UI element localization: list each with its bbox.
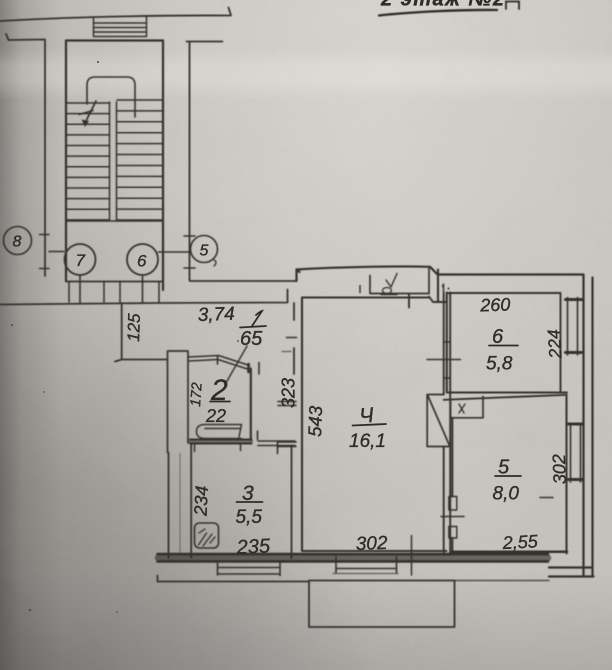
svg-text:235: 235 [235, 535, 271, 559]
svg-text:2,55: 2,55 [501, 531, 539, 553]
svg-text:8: 8 [13, 234, 22, 251]
svg-text:172: 172 [188, 382, 206, 407]
svg-text:234: 234 [190, 485, 212, 517]
svg-text:5,5: 5,5 [236, 507, 263, 528]
svg-text:22: 22 [205, 406, 226, 426]
svg-text:2 этаж №2: 2 этаж №2 [380, 0, 505, 11]
svg-text:302: 302 [549, 454, 570, 485]
svg-text:7: 7 [76, 251, 86, 270]
svg-text:302: 302 [355, 533, 388, 555]
svg-text:16,1: 16,1 [349, 431, 386, 452]
svg-text:323: 323 [279, 378, 299, 408]
svg-text:260: 260 [479, 294, 511, 315]
svg-text:125: 125 [124, 313, 144, 343]
svg-text:224: 224 [543, 328, 565, 360]
svg-text:5: 5 [200, 243, 209, 260]
svg-text:65: 65 [240, 328, 263, 350]
svg-text:6: 6 [137, 252, 147, 271]
svg-text:5,8: 5,8 [486, 354, 513, 375]
svg-text:3,74: 3,74 [197, 304, 235, 326]
svg-text:8,0: 8,0 [493, 484, 520, 505]
svg-text:543: 543 [304, 405, 326, 437]
